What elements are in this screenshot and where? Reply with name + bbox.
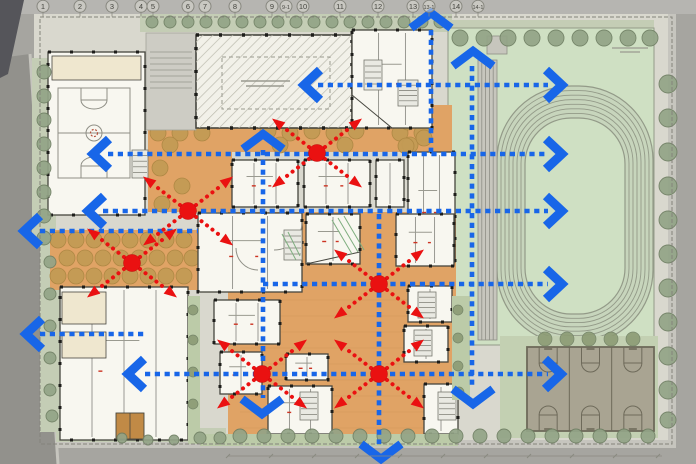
basketball-courts: [500, 336, 658, 438]
grid-bubble-label: 7: [203, 2, 207, 11]
red-node: [371, 276, 388, 293]
grid-bubble-label: 11: [336, 2, 344, 11]
screenshot-root: 1234567899-11011121313-11414-1: [0, 0, 696, 464]
grid-bubble-label: 10: [299, 2, 307, 11]
grid-bubble-label: 1: [41, 2, 45, 11]
grid-bubble-label: 2: [78, 2, 82, 11]
grid-bubble-label: 14-1: [472, 5, 483, 11]
grid-bubble-label: 13: [409, 2, 417, 11]
grid-bubble-label: 13-1: [423, 5, 434, 11]
red-node: [371, 366, 388, 383]
grid-bubble-label: 8: [233, 2, 237, 11]
red-node: [124, 255, 141, 272]
grid-bubble-label: 12: [374, 2, 382, 11]
red-node: [309, 145, 326, 162]
multipurpose-hall-building: [196, 35, 352, 128]
grid-bubble-label: 14: [452, 2, 460, 11]
site-plan-image: 1234567899-11011121313-11414-1: [0, 0, 696, 464]
grid-bubble-label: 5: [151, 2, 155, 11]
grid-bubble-label: 3: [110, 2, 114, 11]
grid-bubble-label: 4: [139, 2, 143, 11]
entry-plaza: [146, 33, 196, 130]
grid-bubble-label: 6: [186, 2, 190, 11]
grid-bubble-label: 9: [270, 2, 274, 11]
red-node: [180, 203, 197, 220]
grid-bubble-label: 9-1: [282, 5, 290, 11]
red-node: [254, 366, 271, 383]
